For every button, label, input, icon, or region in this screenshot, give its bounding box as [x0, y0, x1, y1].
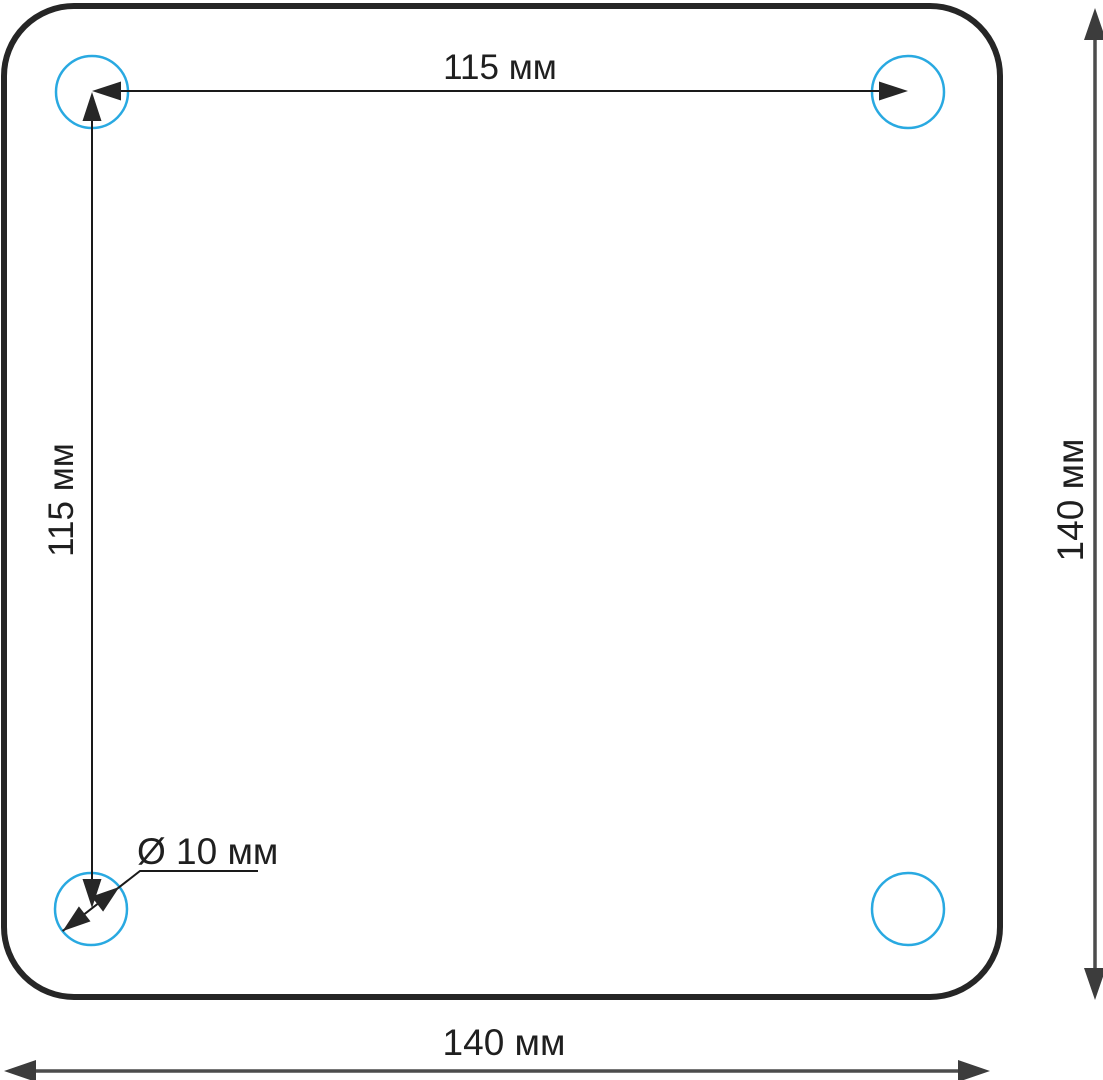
- arrowhead-lower-left-icon: [63, 906, 91, 931]
- dimension-plate-width: 140 мм: [4, 1022, 990, 1080]
- dimension-label-plate-height: 140 мм: [1050, 439, 1091, 562]
- dimension-label-hole-spacing-horizontal: 115 мм: [443, 48, 557, 87]
- arrowhead-right-icon: [958, 1060, 990, 1080]
- hole-bottom-right: [872, 873, 944, 945]
- technical-drawing: 115 мм 115 мм 140 мм 140 мм: [0, 0, 1103, 1080]
- dimension-label-hole-diameter: Ø 10 мм: [137, 831, 278, 872]
- arrowhead-right-icon: [879, 82, 908, 101]
- arrowhead-left-icon: [92, 82, 121, 101]
- arrowhead-up-icon: [83, 92, 102, 121]
- arrowhead-down-icon: [1084, 968, 1103, 1000]
- arrowhead-up-icon: [1084, 8, 1103, 40]
- drawing-canvas: 115 мм 115 мм 140 мм 140 мм: [0, 0, 1103, 1080]
- arrowhead-left-icon: [4, 1060, 36, 1080]
- dimension-hole-spacing-vertical: 115 мм: [42, 92, 102, 908]
- dimension-plate-height: 140 мм: [1050, 8, 1103, 1000]
- dimension-label-plate-width: 140 мм: [443, 1022, 566, 1063]
- dimension-hole-spacing-horizontal: 115 мм: [92, 48, 908, 101]
- dimension-label-hole-spacing-vertical: 115 мм: [42, 443, 81, 557]
